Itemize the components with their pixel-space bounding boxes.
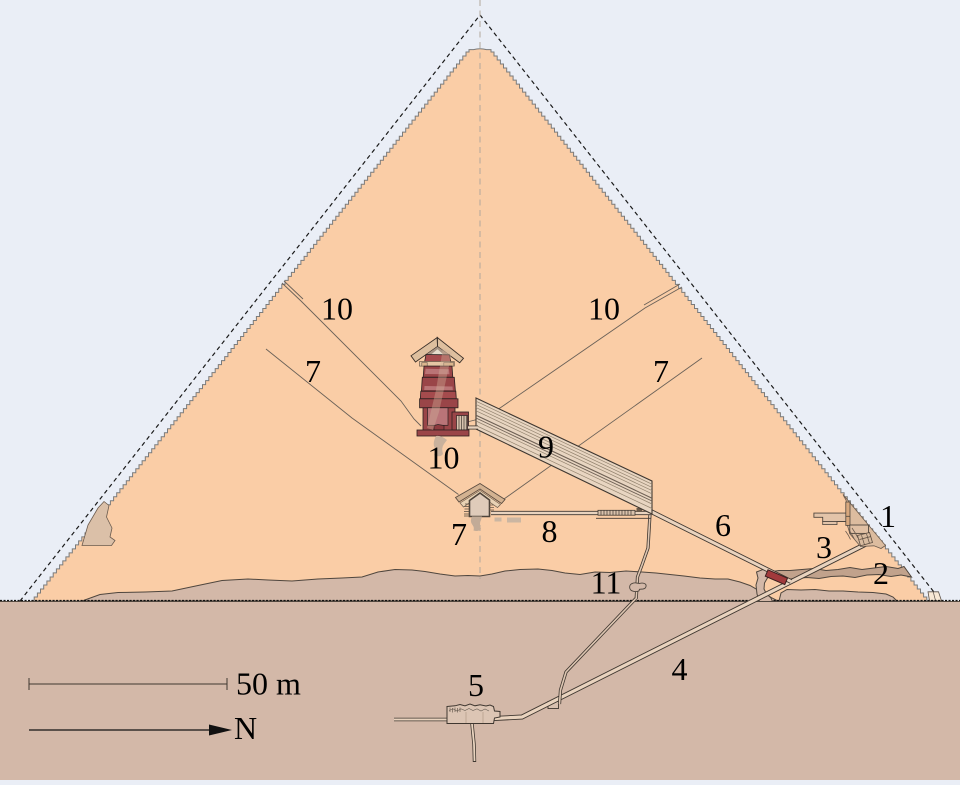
svg-text:N: N <box>234 710 257 746</box>
svg-text:9: 9 <box>538 429 554 465</box>
svg-text:10: 10 <box>428 439 460 475</box>
svg-text:7: 7 <box>653 353 669 389</box>
svg-text:1: 1 <box>880 498 896 534</box>
svg-text:8: 8 <box>542 513 558 549</box>
svg-text:50 m: 50 m <box>236 666 301 702</box>
svg-text:10: 10 <box>588 291 620 327</box>
svg-text:3: 3 <box>816 529 832 565</box>
svg-text:7: 7 <box>451 516 467 552</box>
svg-text:2: 2 <box>873 555 889 591</box>
svg-text:10: 10 <box>321 291 353 327</box>
svg-text:11: 11 <box>591 565 622 601</box>
svg-text:5: 5 <box>468 667 484 703</box>
svg-text:6: 6 <box>715 507 731 543</box>
svg-text:7: 7 <box>305 353 321 389</box>
svg-text:4: 4 <box>672 651 688 687</box>
